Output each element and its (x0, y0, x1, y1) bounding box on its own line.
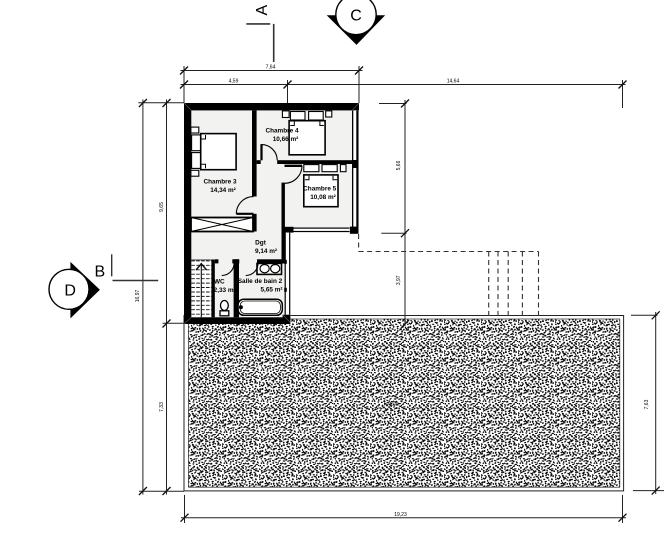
svg-text:10,66 m²: 10,66 m² (273, 136, 299, 143)
svg-text:14,34 m²: 14,34 m² (210, 187, 236, 194)
svg-text:Toiture: Toiture (383, 402, 400, 408)
svg-text:Dgt: Dgt (255, 240, 267, 247)
svg-text:3,97: 3,97 (396, 275, 402, 285)
svg-text:B: B (94, 263, 105, 280)
svg-text:9,14 m²: 9,14 m² (255, 248, 277, 255)
svg-text:19,23: 19,23 (394, 512, 407, 518)
svg-text:16,97: 16,97 (135, 290, 141, 303)
svg-text:9,65: 9,65 (159, 202, 165, 212)
svg-text:7,64: 7,64 (266, 65, 276, 71)
svg-text:Chambre 4: Chambre 4 (265, 128, 298, 135)
svg-text:5,65 m²: 5,65 m² (260, 286, 282, 293)
svg-text:WC: WC (214, 279, 225, 286)
svg-text:5,66: 5,66 (396, 160, 402, 170)
svg-text:10,08 m²: 10,08 m² (310, 194, 336, 201)
svg-text:C: C (350, 8, 362, 25)
svg-text:7,63: 7,63 (644, 399, 650, 409)
svg-text:2,33 m²: 2,33 m² (214, 287, 236, 294)
svg-text:Salle de bain 2: Salle de bain 2 (238, 278, 283, 285)
svg-text:7,33: 7,33 (159, 402, 165, 412)
svg-text:4,59: 4,59 (229, 79, 239, 85)
svg-text:D: D (64, 283, 76, 300)
svg-text:Chambre 5: Chambre 5 (303, 186, 336, 193)
svg-text:Chambre 3: Chambre 3 (203, 179, 236, 186)
svg-text:A: A (254, 5, 271, 16)
svg-text:14,64: 14,64 (447, 79, 460, 85)
